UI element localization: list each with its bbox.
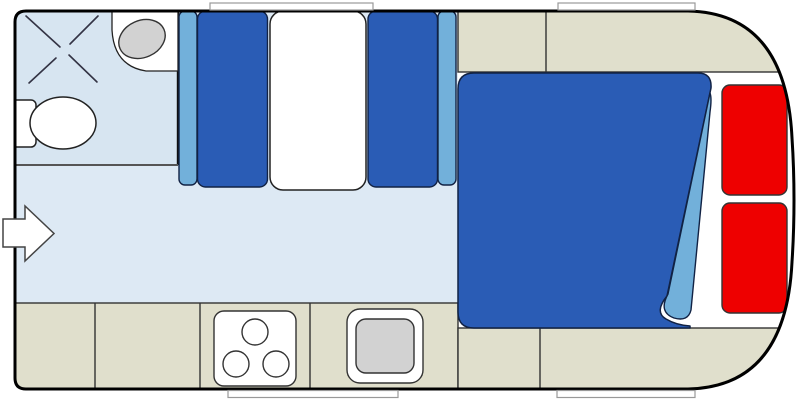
dinette-backrest-right xyxy=(438,11,456,185)
red-locker-bottom xyxy=(722,203,787,313)
dinette-backrest-left xyxy=(179,11,197,185)
window-bottom-right xyxy=(557,391,695,398)
dinette-table xyxy=(270,11,366,190)
dinette-seat-left xyxy=(198,11,268,187)
stove-burner-right xyxy=(263,351,289,377)
overhead-cabinet xyxy=(458,11,796,72)
dinette-seat-right xyxy=(368,11,438,187)
toilet-bowl xyxy=(30,97,96,149)
window-bottom-left xyxy=(228,391,398,398)
stove-burner-top xyxy=(242,319,268,345)
window-top-left xyxy=(210,3,373,10)
kitchen-sink xyxy=(347,309,423,383)
floorplan-svg xyxy=(0,0,800,400)
stove xyxy=(214,311,296,386)
stove-burner-left xyxy=(223,351,249,377)
kitchen-counter-right xyxy=(458,328,796,389)
toilet xyxy=(11,97,96,149)
kitchen-sink-bowl xyxy=(356,319,414,373)
floorplan-canvas xyxy=(0,0,800,400)
red-locker-top xyxy=(722,85,787,195)
window-top-right xyxy=(558,3,695,10)
